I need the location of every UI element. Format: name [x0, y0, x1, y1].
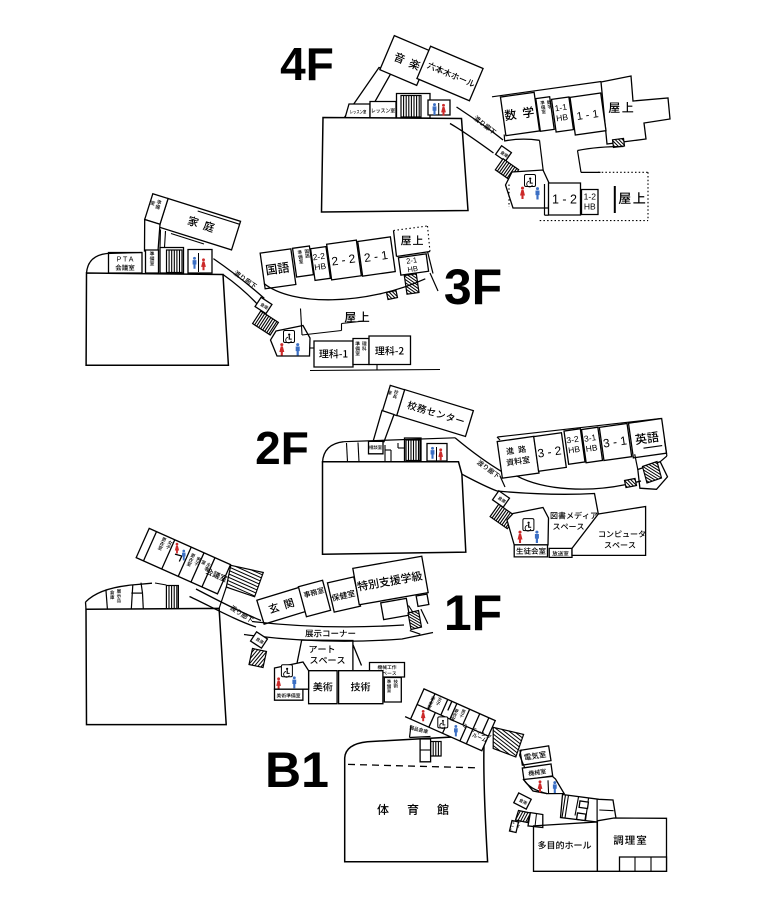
svg-text:HB: HB: [556, 112, 569, 124]
svg-text:3F: 3F: [444, 259, 502, 315]
svg-text:HB: HB: [568, 444, 581, 456]
svg-text:P T A: P T A: [117, 257, 134, 264]
svg-text:HB: HB: [314, 261, 327, 273]
svg-text:HB: HB: [407, 264, 419, 274]
svg-text:HB: HB: [585, 442, 598, 454]
svg-text:1F: 1F: [444, 585, 502, 641]
svg-text:1 - 2: 1 - 2: [552, 193, 577, 207]
svg-text:2F: 2F: [255, 422, 309, 474]
svg-text:HB: HB: [584, 202, 596, 212]
svg-text:1-2: 1-2: [584, 192, 597, 202]
svg-text:B1: B1: [265, 742, 329, 798]
svg-text:4F: 4F: [280, 38, 334, 90]
